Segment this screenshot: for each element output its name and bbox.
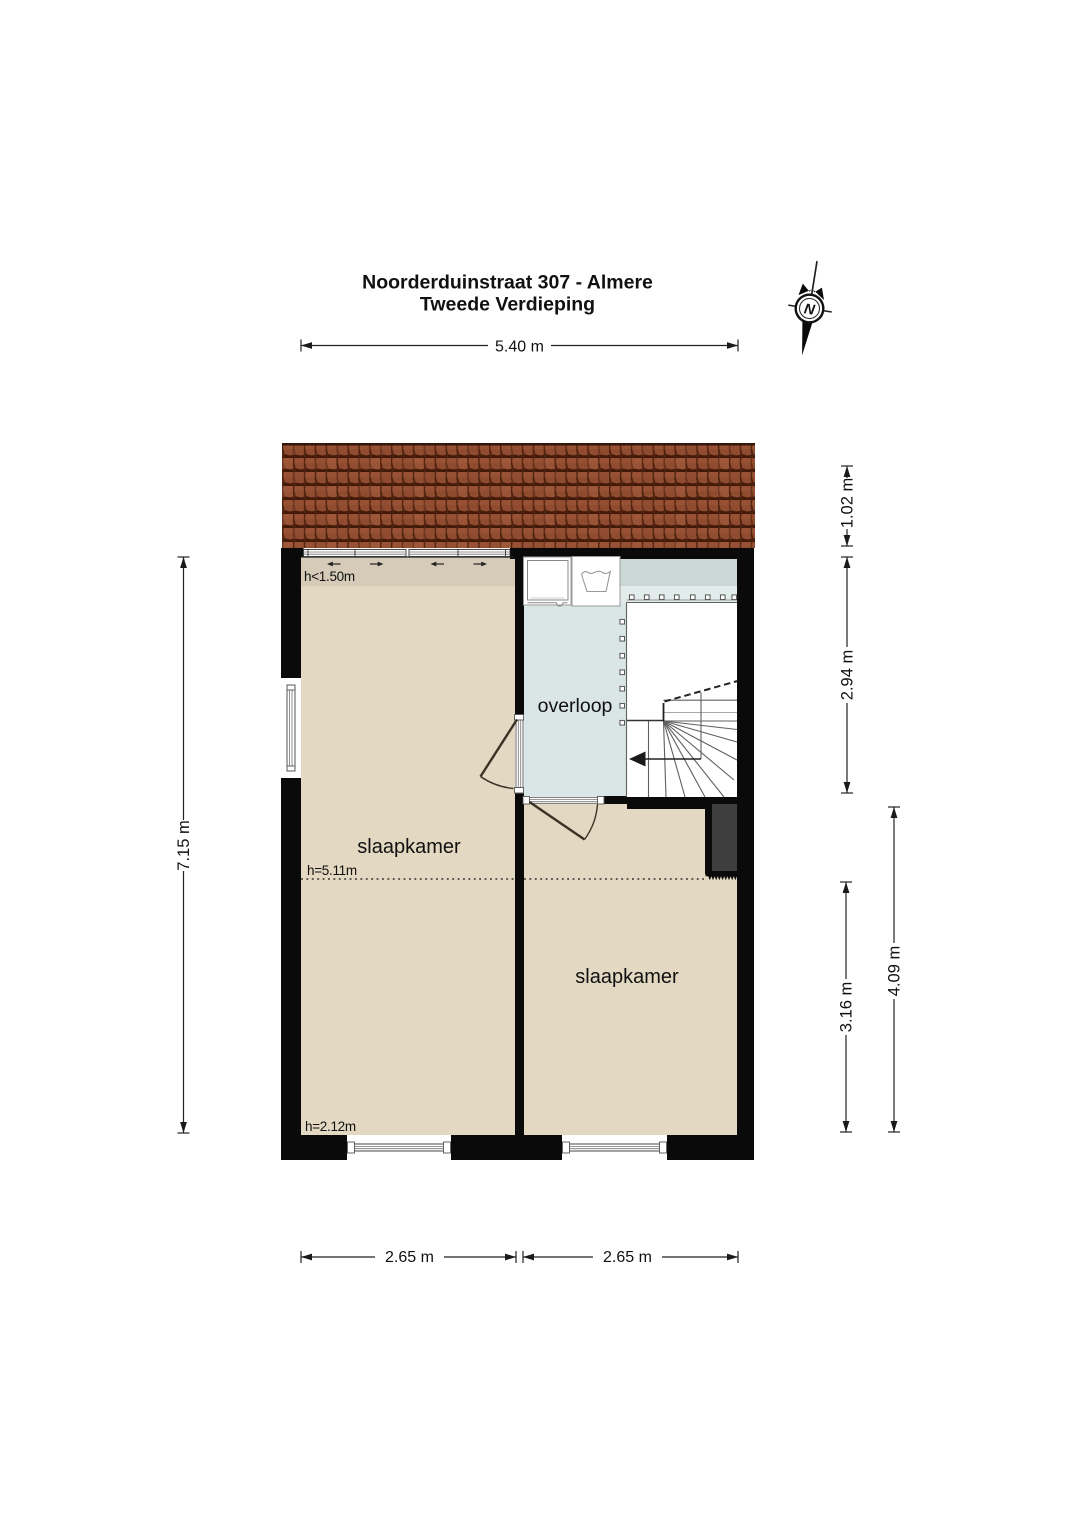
svg-text:h=2.12m: h=2.12m (305, 1119, 356, 1134)
svg-text:slaapkamer: slaapkamer (575, 966, 679, 988)
svg-text:2.65 m: 2.65 m (603, 1249, 652, 1266)
svg-text:3.16 m: 3.16 m (838, 982, 856, 1032)
svg-text:Tweede Verdieping: Tweede Verdieping (420, 294, 595, 316)
svg-text:4.09 m: 4.09 m (886, 946, 904, 996)
svg-text:2.65 m: 2.65 m (385, 1249, 434, 1266)
svg-text:Noorderduinstraat 307 - Almere: Noorderduinstraat 307 - Almere (362, 272, 653, 294)
svg-text:h=5.11m: h=5.11m (307, 863, 357, 878)
svg-text:h<1.50m: h<1.50m (304, 569, 355, 584)
svg-text:1.02 m: 1.02 m (839, 478, 857, 528)
svg-text:7.15 m: 7.15 m (175, 820, 193, 870)
svg-text:overloop: overloop (538, 695, 613, 717)
svg-text:2.94 m: 2.94 m (839, 650, 857, 700)
svg-text:slaapkamer: slaapkamer (357, 836, 461, 858)
svg-text:5.40 m: 5.40 m (495, 339, 544, 356)
